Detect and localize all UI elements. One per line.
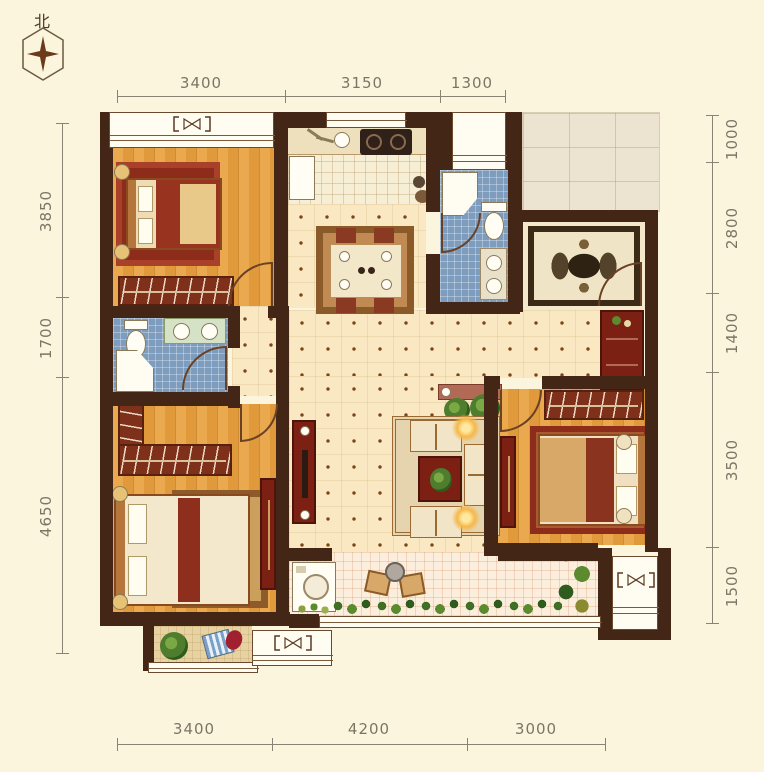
sink bbox=[173, 323, 190, 340]
floor-plan-canvas: 北 3400 3150 1300 3400 4200 3000 3850 170… bbox=[0, 0, 764, 772]
dim-tick bbox=[272, 738, 273, 751]
wall bbox=[508, 222, 523, 312]
bay-window bbox=[452, 112, 506, 170]
dim-tick bbox=[56, 123, 69, 124]
dim-tick bbox=[505, 90, 506, 103]
dim-tick bbox=[56, 297, 69, 298]
dim-label: 4200 bbox=[337, 720, 401, 738]
round-pillow bbox=[112, 486, 128, 502]
dim-label: 1000 bbox=[723, 107, 741, 171]
dim-label: 1400 bbox=[723, 301, 741, 365]
sink bbox=[201, 323, 218, 340]
window-line bbox=[327, 120, 407, 121]
bay-window bbox=[612, 556, 658, 630]
dim-label: 3850 bbox=[37, 179, 55, 243]
dim-label: 1700 bbox=[37, 306, 55, 370]
wall bbox=[274, 112, 326, 128]
dim-tick bbox=[706, 162, 719, 163]
dim-tick bbox=[706, 547, 719, 548]
dim-tick bbox=[706, 372, 719, 373]
bathroom-vanity bbox=[480, 248, 507, 300]
dim-label: 2800 bbox=[723, 196, 741, 260]
deco bbox=[300, 510, 310, 520]
window-x-icon bbox=[616, 571, 656, 589]
round-pillow bbox=[112, 594, 128, 610]
plate bbox=[339, 251, 350, 262]
dining-chair bbox=[336, 298, 356, 313]
lamp bbox=[452, 504, 480, 532]
round-pillow bbox=[114, 164, 130, 180]
cushion-line bbox=[435, 424, 437, 450]
dim-tick bbox=[706, 293, 719, 294]
door-leaf bbox=[271, 262, 273, 306]
dim-tick bbox=[117, 90, 118, 103]
wall bbox=[100, 112, 113, 626]
bowl bbox=[368, 267, 375, 274]
dim-tick bbox=[117, 738, 118, 751]
coffee-table bbox=[418, 456, 462, 502]
wall bbox=[484, 543, 598, 556]
dim-label: 3400 bbox=[162, 720, 226, 738]
wall bbox=[100, 112, 109, 148]
sink bbox=[486, 255, 502, 271]
wall bbox=[508, 112, 522, 222]
wall bbox=[228, 306, 240, 348]
wall bbox=[542, 376, 645, 389]
dim-tick bbox=[56, 377, 69, 378]
bed-headboard bbox=[116, 496, 125, 604]
kitchen-sink bbox=[334, 132, 350, 148]
round-pillow bbox=[616, 508, 632, 524]
window-line bbox=[613, 613, 659, 614]
bay-window bbox=[109, 112, 274, 148]
bowl bbox=[358, 267, 365, 274]
balcony-window bbox=[148, 662, 258, 673]
stove-burner bbox=[366, 134, 382, 150]
dim-line-top bbox=[117, 96, 506, 97]
bed bbox=[538, 434, 648, 526]
dim-tick bbox=[706, 115, 719, 116]
wall bbox=[440, 112, 452, 170]
window-line bbox=[149, 668, 259, 669]
water-heater bbox=[413, 176, 425, 188]
tv-cabinet bbox=[260, 478, 276, 590]
wall bbox=[100, 306, 232, 318]
dim-tick bbox=[285, 90, 286, 103]
wall bbox=[598, 630, 671, 640]
dim-label: 3000 bbox=[504, 720, 568, 738]
bed bbox=[114, 494, 250, 606]
toilet bbox=[484, 212, 504, 240]
wall bbox=[274, 128, 288, 318]
pillow bbox=[138, 186, 153, 212]
potted-plant bbox=[160, 632, 188, 660]
window-line bbox=[613, 607, 659, 608]
cushion-line bbox=[435, 510, 437, 536]
kitchen-window bbox=[326, 112, 406, 128]
stove bbox=[360, 129, 412, 155]
dim-label: 1300 bbox=[440, 74, 504, 92]
wall bbox=[508, 210, 658, 222]
washer-drum bbox=[303, 574, 329, 600]
hallway-floor bbox=[289, 310, 600, 378]
public-corridor-floor bbox=[522, 112, 660, 212]
bed-quilt bbox=[180, 184, 216, 244]
bed bbox=[126, 178, 222, 250]
wardrobe-rail bbox=[124, 460, 226, 462]
toilet-tank bbox=[481, 202, 507, 212]
wall bbox=[426, 128, 440, 212]
plate bbox=[381, 251, 392, 262]
balcony-window bbox=[319, 616, 601, 628]
pillow bbox=[128, 556, 147, 596]
dining-chair bbox=[336, 228, 356, 243]
pillow bbox=[128, 504, 147, 544]
dim-line-left bbox=[62, 123, 63, 653]
bed-runner bbox=[178, 498, 200, 602]
fridge bbox=[289, 156, 315, 200]
dim-label: 3500 bbox=[723, 428, 741, 492]
window-line bbox=[253, 655, 333, 656]
dim-line-bottom bbox=[117, 744, 605, 745]
wall bbox=[484, 376, 498, 556]
bed-headboard bbox=[128, 180, 136, 248]
dresser bbox=[500, 436, 516, 528]
balcony-table bbox=[385, 562, 405, 582]
dining-chair bbox=[374, 228, 394, 243]
wardrobe bbox=[544, 390, 644, 420]
shelf-line bbox=[606, 338, 638, 340]
deco-flower bbox=[624, 320, 631, 327]
bed-quilt bbox=[540, 438, 586, 522]
bed-blanket bbox=[586, 438, 614, 522]
bathroom-vanity bbox=[164, 318, 226, 344]
sink bbox=[486, 278, 502, 294]
window-line bbox=[453, 155, 507, 156]
plate bbox=[381, 279, 392, 290]
compass-icon bbox=[18, 26, 68, 82]
window-x-icon bbox=[172, 115, 212, 133]
tv-cabinet bbox=[292, 420, 316, 524]
wardrobe-rail bbox=[550, 405, 638, 407]
dining-table bbox=[330, 244, 402, 298]
pillow bbox=[138, 218, 153, 244]
dim-tick bbox=[467, 738, 468, 751]
window-line bbox=[110, 135, 275, 136]
window-line bbox=[453, 161, 507, 162]
deco bbox=[441, 387, 451, 397]
window-line bbox=[110, 140, 275, 141]
bay-window bbox=[252, 630, 332, 666]
dim-label: 1500 bbox=[723, 554, 741, 618]
toilet-tank bbox=[124, 320, 148, 330]
round-pillow bbox=[114, 244, 130, 260]
cabinet-handle bbox=[508, 456, 510, 512]
table-plant bbox=[430, 468, 452, 492]
wall bbox=[100, 392, 240, 406]
wardrobe bbox=[118, 444, 232, 476]
wardrobe-rail bbox=[124, 291, 228, 293]
wall bbox=[289, 614, 319, 628]
dim-label: 4650 bbox=[37, 484, 55, 548]
cabinet-handle bbox=[268, 500, 270, 570]
lamp bbox=[452, 414, 480, 442]
wall bbox=[645, 222, 658, 552]
dim-label: 3150 bbox=[330, 74, 394, 92]
dining-chair bbox=[374, 298, 394, 313]
dim-tick bbox=[706, 623, 719, 624]
dim-label: 3400 bbox=[169, 74, 233, 92]
wall bbox=[100, 612, 290, 626]
plate bbox=[339, 279, 350, 290]
window-line bbox=[320, 622, 602, 623]
deco-plant bbox=[612, 316, 621, 325]
round-pillow bbox=[616, 434, 632, 450]
washer-panel bbox=[296, 566, 306, 573]
wall bbox=[426, 302, 520, 314]
window-line bbox=[253, 660, 333, 661]
tv bbox=[302, 450, 308, 498]
shelf-line bbox=[606, 364, 638, 366]
window-x-icon bbox=[273, 634, 313, 652]
wall bbox=[280, 548, 332, 561]
stove-burner bbox=[390, 134, 406, 150]
door-leaf bbox=[225, 346, 227, 390]
wardrobe bbox=[118, 276, 234, 306]
deco bbox=[300, 426, 310, 436]
wall bbox=[658, 548, 671, 640]
wall bbox=[276, 306, 289, 626]
dim-tick bbox=[56, 653, 69, 654]
dim-tick bbox=[605, 738, 606, 751]
